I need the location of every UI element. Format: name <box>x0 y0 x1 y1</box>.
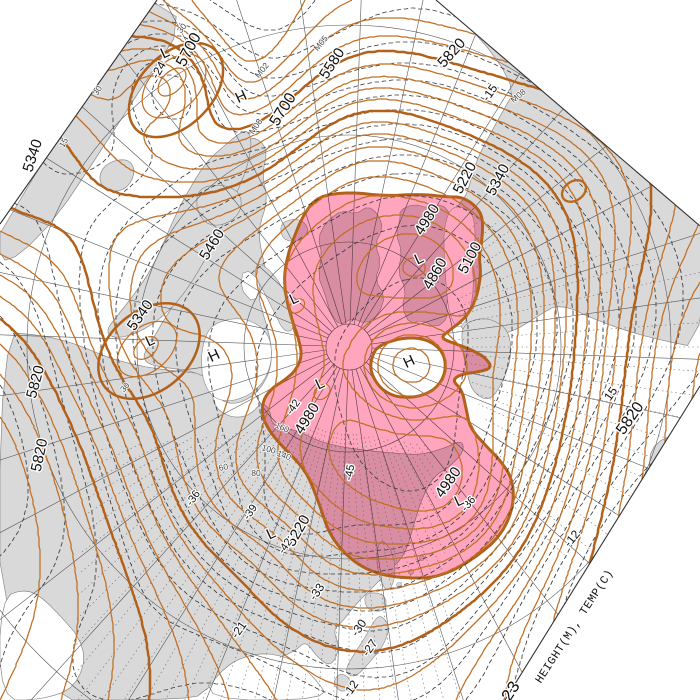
svg-text:80: 80 <box>251 468 261 478</box>
